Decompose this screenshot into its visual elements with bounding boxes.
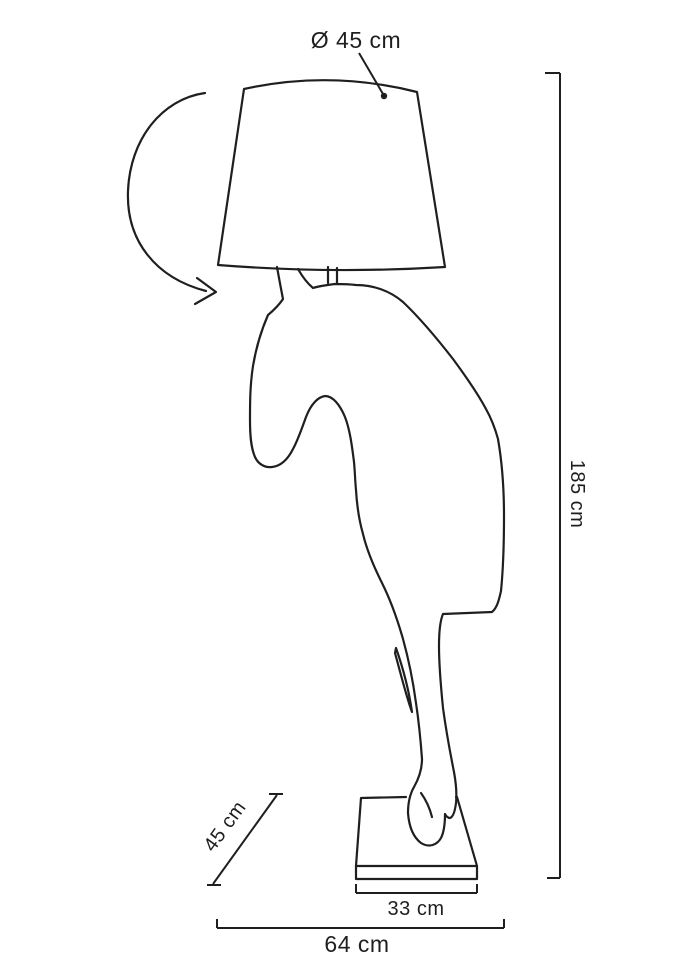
- overall-width-dimension-label: 64 cm: [324, 931, 389, 957]
- depth-dimension-label: 45 cm: [200, 797, 251, 856]
- horse-silhouette: [250, 267, 504, 845]
- horse-leg-detail: [395, 648, 412, 712]
- base-plate-top-face: [356, 797, 477, 866]
- height-dimension-label: 185 cm: [566, 460, 588, 529]
- dimension-diagram: Ø 45 cm 185 cm 45 cm 33 cm: [0, 0, 679, 960]
- rotation-arrow-icon: [128, 93, 216, 304]
- rotation-arrow-arc: [128, 93, 206, 291]
- depth-dimension: 45 cm: [200, 794, 283, 885]
- base-width-dimension-label: 33 cm: [388, 898, 445, 920]
- dimension-diagram-page: Ø 45 cm 185 cm 45 cm 33 cm: [0, 0, 679, 960]
- diameter-dimension-label: Ø 45 cm: [311, 27, 401, 53]
- height-dimension: 185 cm: [545, 73, 588, 878]
- leader-dot: [381, 93, 387, 99]
- base-plate-edge: [356, 866, 477, 879]
- horse-hoof-detail: [421, 793, 432, 817]
- base-width-dimension: 33 cm: [356, 884, 477, 920]
- lampshade-outline: [218, 80, 445, 270]
- overall-width-dimension: 64 cm: [217, 919, 504, 957]
